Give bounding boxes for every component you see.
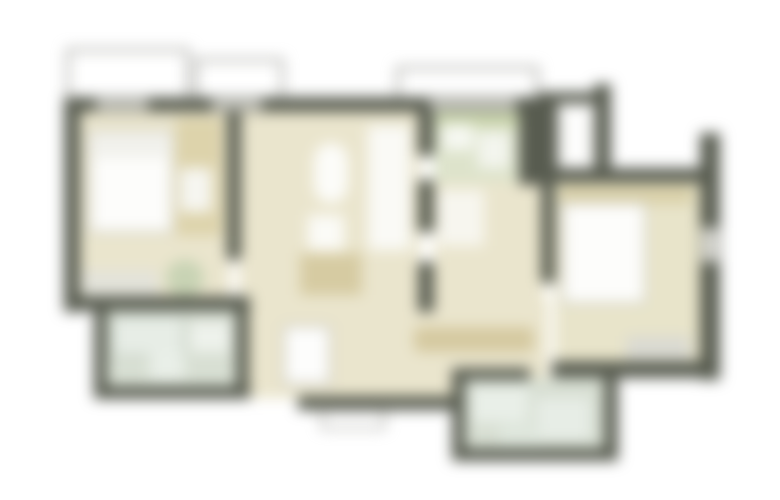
wall-bottom-left xyxy=(64,296,250,311)
floor-plan xyxy=(0,0,780,500)
window-right-wall xyxy=(702,228,718,262)
window-right-top xyxy=(558,104,594,170)
wall-bedroom2-top xyxy=(538,168,706,183)
wall-bedroom2-left xyxy=(541,183,555,283)
bath-bottom-wall-bottom xyxy=(452,448,618,461)
bath-bottom-shower xyxy=(472,386,528,422)
bed-left-pillow xyxy=(94,136,168,158)
living-white-unit xyxy=(368,126,410,250)
hall-washer xyxy=(284,326,330,384)
plant-left xyxy=(166,260,204,296)
bath-left-tub xyxy=(112,316,184,356)
hall-bottom-wall xyxy=(298,396,454,410)
living-chair xyxy=(308,215,344,251)
bath-left-wall-left xyxy=(94,300,107,398)
kitchen-counter xyxy=(437,110,521,126)
living-sofa xyxy=(300,253,362,295)
balcony-left-outline xyxy=(68,50,188,100)
bath-bottom-tub xyxy=(536,398,590,440)
window-living xyxy=(212,99,262,110)
bath-bottom-wall-left xyxy=(452,368,465,460)
balcony-left2-outline xyxy=(196,60,282,100)
kitchen-stove xyxy=(478,132,510,168)
bath-bottom-wall-right xyxy=(604,368,618,460)
wall-left xyxy=(64,97,80,312)
wall-corridor-left-b xyxy=(418,180,434,232)
bedroom-right-desk xyxy=(560,186,692,204)
entry-step-outline xyxy=(322,410,384,428)
kitchen-sink xyxy=(443,124,473,150)
bath-left-sink xyxy=(190,322,230,352)
wall-corridor-left-a xyxy=(418,110,434,156)
corridor-door-swing xyxy=(438,190,484,246)
wall-corridor-left-c xyxy=(418,262,434,312)
rug-left xyxy=(82,270,158,298)
window-kitchen xyxy=(430,99,516,110)
chair-left xyxy=(180,168,212,212)
bed-right xyxy=(563,203,645,303)
bath-left-toilet xyxy=(150,352,184,380)
floor-plan-screenshot xyxy=(0,0,780,500)
hall-wardrobe xyxy=(414,327,534,352)
bath-left-wall-right xyxy=(236,300,249,392)
bath-bottom-wall-top xyxy=(452,368,530,380)
floor-plan-svg xyxy=(0,0,780,500)
window-bedroom-left xyxy=(96,99,148,110)
bedroom-right-rug xyxy=(626,336,690,360)
wall-bedroom1-living xyxy=(227,110,241,260)
wall-stub-top-b xyxy=(594,84,611,172)
bath-left-wall-bottom xyxy=(94,386,250,399)
living-oval-table xyxy=(314,143,348,203)
balcony-top-right-outline xyxy=(398,68,537,102)
bath-bottom-sink xyxy=(500,424,540,446)
wall-bedroom2-bottom xyxy=(552,361,720,378)
